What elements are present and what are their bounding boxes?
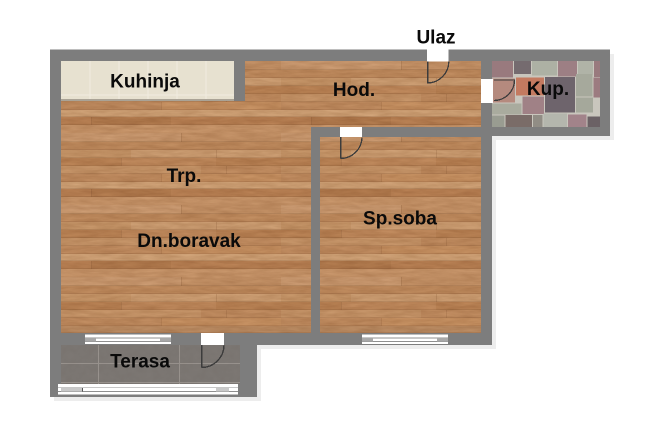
- svg-text:Ulaz: Ulaz: [416, 28, 455, 49]
- svg-text:Sp.soba: Sp.soba: [363, 209, 437, 230]
- svg-text:Kup.: Kup.: [527, 79, 569, 100]
- svg-text:Kuhinja: Kuhinja: [110, 72, 180, 93]
- svg-text:Hod.: Hod.: [333, 80, 375, 101]
- svg-text:Trp.: Trp.: [167, 166, 202, 187]
- svg-text:Dn.boravak: Dn.boravak: [137, 231, 241, 252]
- svg-text:Terasa: Terasa: [110, 352, 170, 373]
